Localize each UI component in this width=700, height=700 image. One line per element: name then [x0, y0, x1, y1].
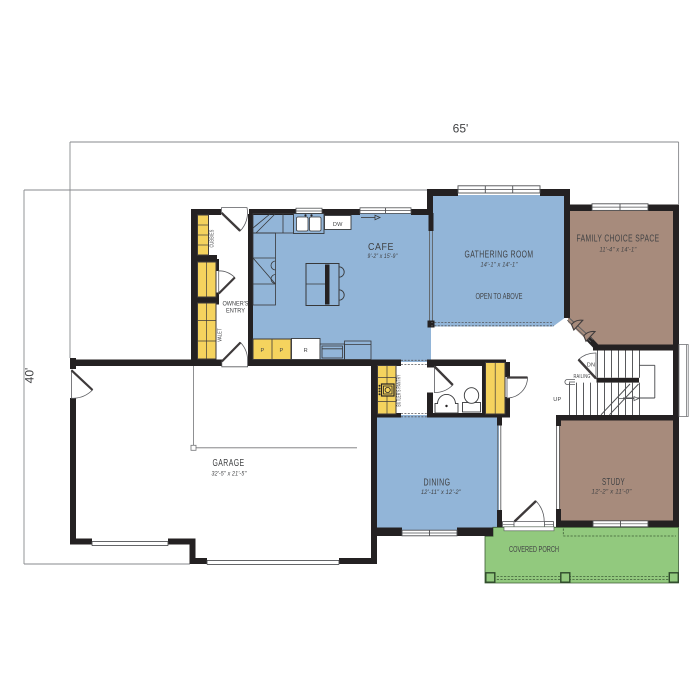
svg-text:COVERED PORCH: COVERED PORCH	[509, 545, 559, 554]
svg-text:CUBBIES: CUBBIES	[210, 229, 216, 247]
svg-text:R: R	[304, 348, 308, 354]
svg-text:GATHERING ROOM: GATHERING ROOM	[465, 250, 534, 261]
svg-text:P: P	[280, 348, 284, 354]
svg-text:VALET: VALET	[218, 328, 224, 342]
svg-text:UP: UP	[553, 397, 561, 403]
svg-text:DINING: DINING	[424, 478, 451, 489]
svg-text:40': 40'	[23, 368, 37, 384]
svg-text:ENTRY: ENTRY	[226, 308, 246, 315]
svg-text:9'-2" x 15'-9": 9'-2" x 15'-9"	[368, 253, 398, 260]
svg-text:DW: DW	[333, 222, 343, 228]
svg-text:CAFE: CAFE	[368, 242, 394, 253]
svg-text:P: P	[261, 348, 265, 354]
svg-text:32'-5" x 21'-5": 32'-5" x 21'-5"	[212, 471, 247, 478]
svg-text:65': 65'	[453, 122, 469, 136]
svg-text:BUTLER'S PANTRY: BUTLER'S PANTRY	[397, 374, 403, 406]
svg-text:RAILING: RAILING	[574, 374, 591, 380]
svg-text:GARAGE: GARAGE	[213, 458, 245, 469]
svg-text:12'-2" x 11'-0": 12'-2" x 11'-0"	[592, 489, 632, 496]
svg-text:OWNER'S: OWNER'S	[223, 301, 250, 308]
svg-text:FAMILY CHOICE SPACE: FAMILY CHOICE SPACE	[577, 234, 660, 245]
svg-text:OPEN TO ABOVE: OPEN TO ABOVE	[476, 292, 523, 301]
svg-text:STUDY: STUDY	[602, 477, 625, 488]
svg-text:DN: DN	[587, 363, 595, 369]
svg-text:12'-11" x 12'-2": 12'-11" x 12'-2"	[421, 489, 461, 496]
svg-text:11'-4" x 14'-1": 11'-4" x 14'-1"	[600, 247, 637, 254]
svg-text:14'-1" x 14'-1": 14'-1" x 14'-1"	[481, 262, 518, 269]
